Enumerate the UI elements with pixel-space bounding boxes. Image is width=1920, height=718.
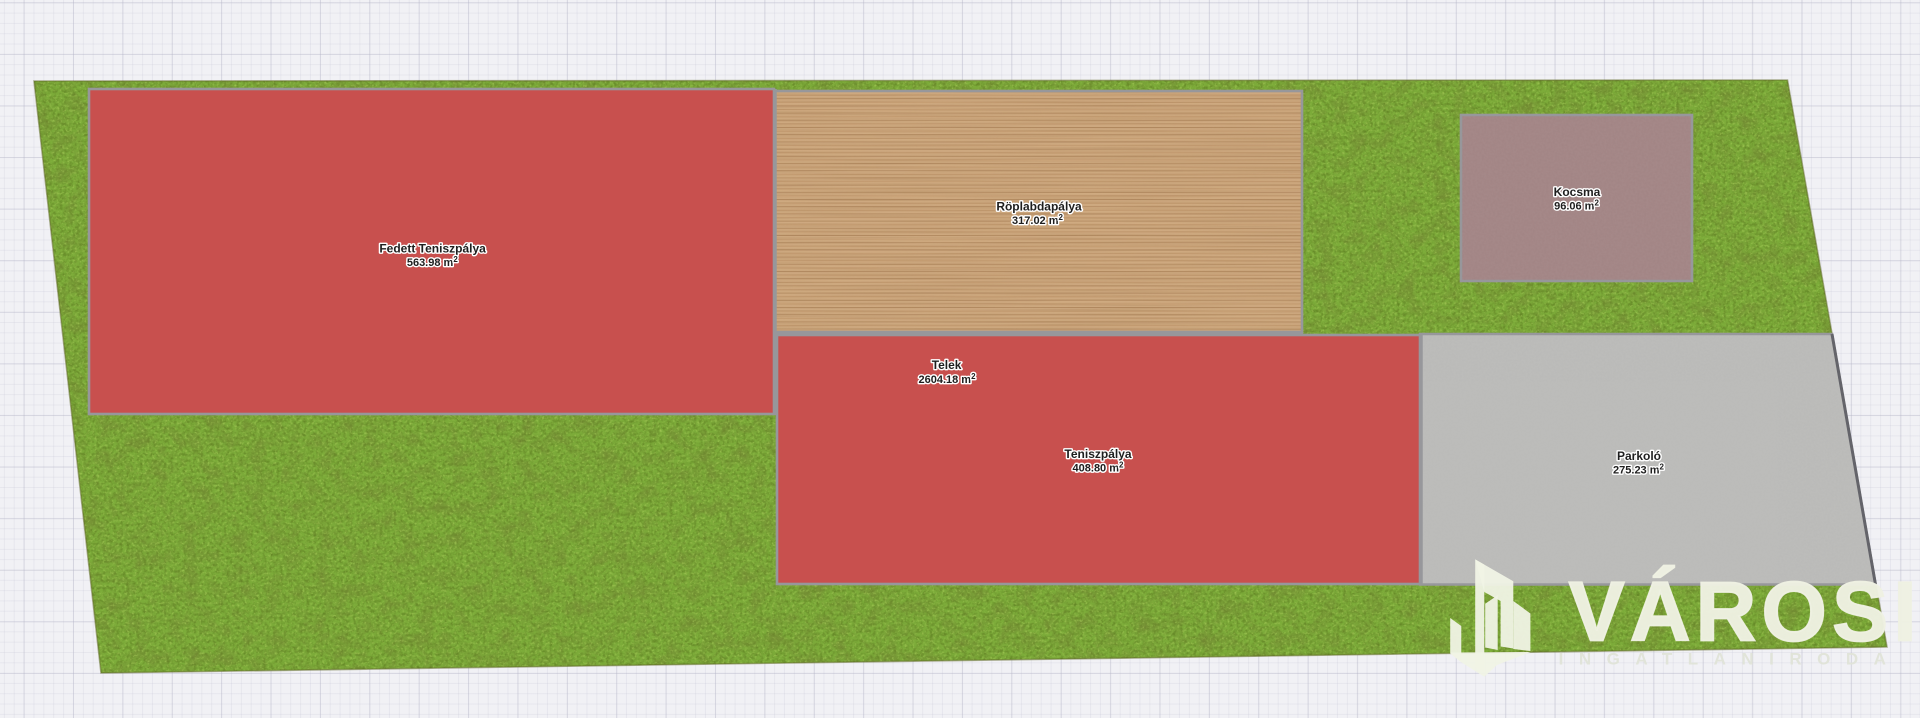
svg-text:96.06 m2: 96.06 m2 — [1554, 199, 1599, 213]
svg-text:Telek: Telek — [932, 358, 962, 372]
svg-text:275.23 m2: 275.23 m2 — [1613, 463, 1664, 477]
svg-text:Parkoló: Parkoló — [1617, 449, 1661, 463]
svg-text:VÁROSI: VÁROSI — [1569, 565, 1920, 659]
svg-text:2604.18 m2: 2604.18 m2 — [918, 372, 976, 386]
svg-text:317.02 m2: 317.02 m2 — [1012, 213, 1063, 227]
svg-text:INGATLANIRODA: INGATLANIRODA — [1559, 650, 1902, 669]
svg-text:Röplabdapálya: Röplabdapálya — [996, 200, 1082, 214]
svg-text:Teniszpálya: Teniszpálya — [1064, 447, 1131, 461]
svg-text:408.80 m2: 408.80 m2 — [1073, 461, 1124, 475]
svg-text:Fedett Teniszpálya: Fedett Teniszpálya — [379, 241, 486, 255]
svg-text:563.98 m2: 563.98 m2 — [407, 255, 458, 269]
svg-text:Kocsma: Kocsma — [1554, 185, 1601, 199]
